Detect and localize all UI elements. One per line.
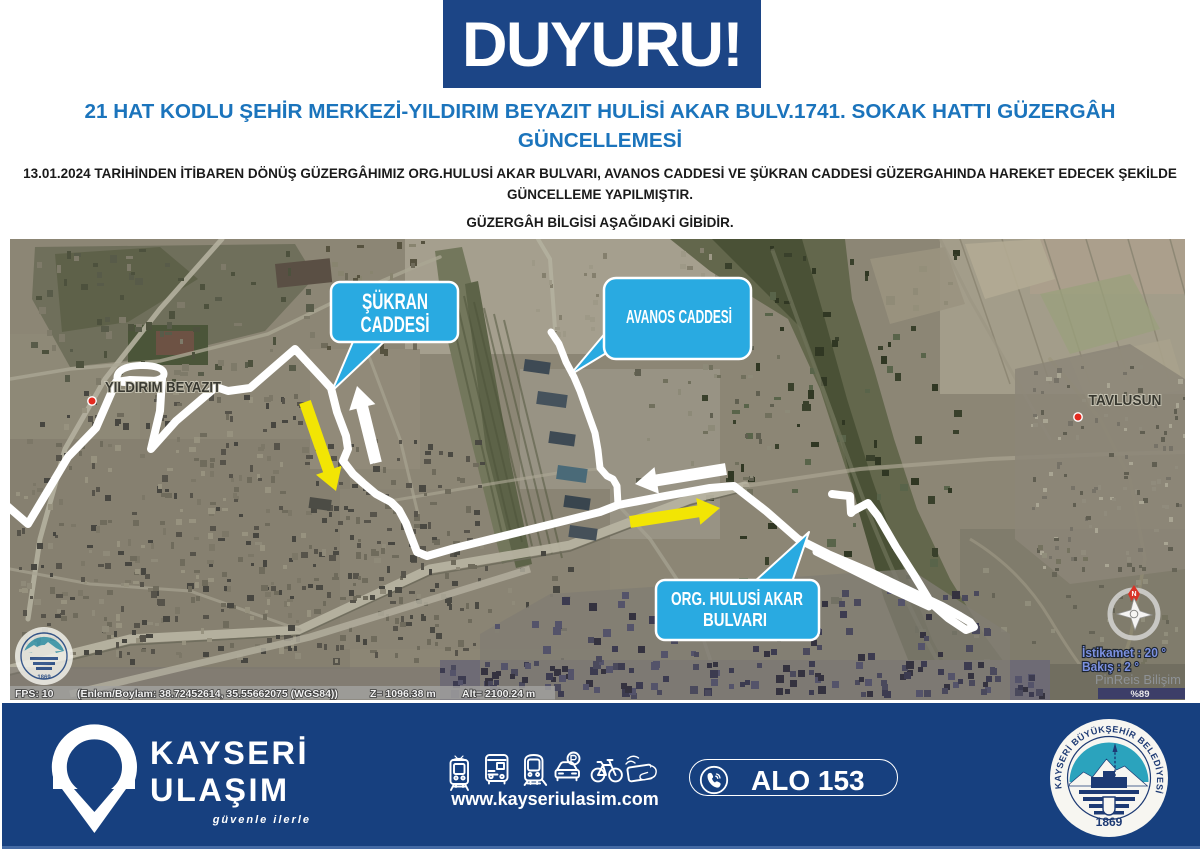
svg-text:AVANOS CADDESİ: AVANOS CADDESİ	[626, 307, 732, 327]
svg-text:İstikamet : 20 °: İstikamet : 20 °	[1082, 645, 1166, 660]
svg-text:TAVLUSUN: TAVLUSUN	[1089, 392, 1162, 409]
svg-text:ŞÜKRAN: ŞÜKRAN	[362, 289, 428, 314]
svg-text:Z= 1096.38 m: Z= 1096.38 m	[370, 688, 436, 700]
svg-text:BULVARI: BULVARI	[703, 610, 767, 630]
svg-text:PinReis Bilişim LTD: PinReis Bilişim LTD	[1095, 672, 1185, 687]
svg-text:YILDIRIM BEYAZIT: YILDIRIM BEYAZIT	[105, 379, 221, 396]
svg-text:1869: 1869	[37, 675, 51, 681]
svg-text:CADDESİ: CADDESİ	[361, 312, 430, 337]
svg-text:%89: %89	[1130, 689, 1149, 700]
svg-text:(Enlem/Boylam: 38.72452614, 35: (Enlem/Boylam: 38.72452614, 35.55662075 …	[77, 688, 338, 700]
svg-text:1869: 1869	[1096, 815, 1123, 829]
svg-text:N: N	[1131, 591, 1136, 598]
svg-text:ORG. HULUSİ AKAR: ORG. HULUSİ AKAR	[671, 589, 803, 609]
svg-text:FPS: 10: FPS: 10	[15, 688, 54, 700]
svg-text:Alt= 2100.24 m: Alt= 2100.24 m	[462, 688, 535, 700]
